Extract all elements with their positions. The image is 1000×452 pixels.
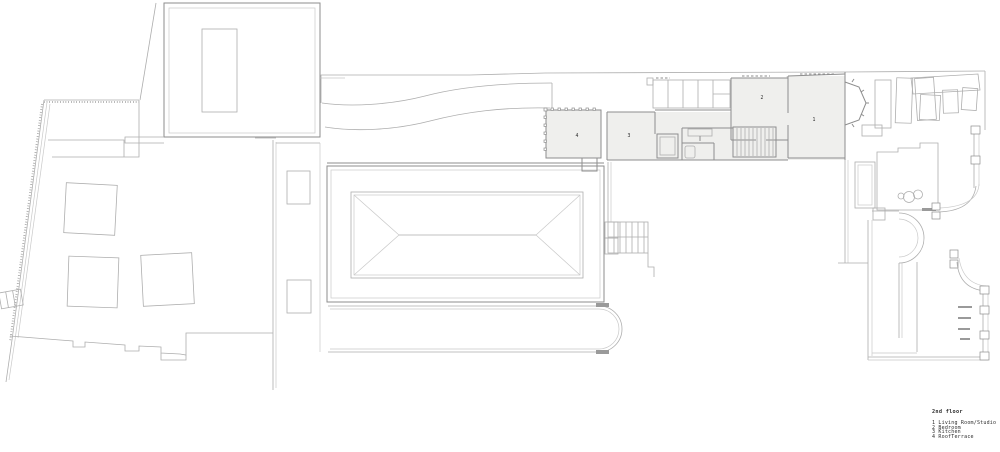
room-label-1: 1 <box>813 117 816 123</box>
skylight-roof <box>351 192 583 278</box>
gate <box>0 289 23 309</box>
rear-terrace <box>608 162 654 277</box>
garden-wall-upper <box>932 126 980 219</box>
mid-strip-walkway <box>255 138 320 390</box>
floor-plan-canvas: 4 3 2 <box>0 0 1000 452</box>
legend-item-4: 4 RoofTerrace <box>932 435 996 440</box>
apartment-floor: 4 3 2 <box>544 72 869 160</box>
top-left-building <box>125 3 320 143</box>
top-stair-hall <box>647 78 731 110</box>
room-label-2: 2 <box>761 95 764 101</box>
right-courtyard <box>838 125 989 360</box>
floor-plan-drawing: 4 3 2 <box>0 0 1000 452</box>
legend: 2nd floor 1 Living Room/Studio 2 Bedroom… <box>932 409 996 440</box>
neighbour-roofs <box>875 74 980 128</box>
room-label-3: 3 <box>628 133 631 139</box>
legend-items: 1 Living Room/Studio 2 Bedroom 3 Kitchen… <box>932 421 996 440</box>
left-terrace <box>0 100 273 382</box>
legend-title: 2nd floor <box>932 409 996 415</box>
lower-band <box>328 303 622 354</box>
planter-squares <box>64 183 195 308</box>
garden-wall-lower <box>950 250 989 360</box>
central-hall <box>327 158 622 354</box>
room-label-4: 4 <box>576 133 579 139</box>
